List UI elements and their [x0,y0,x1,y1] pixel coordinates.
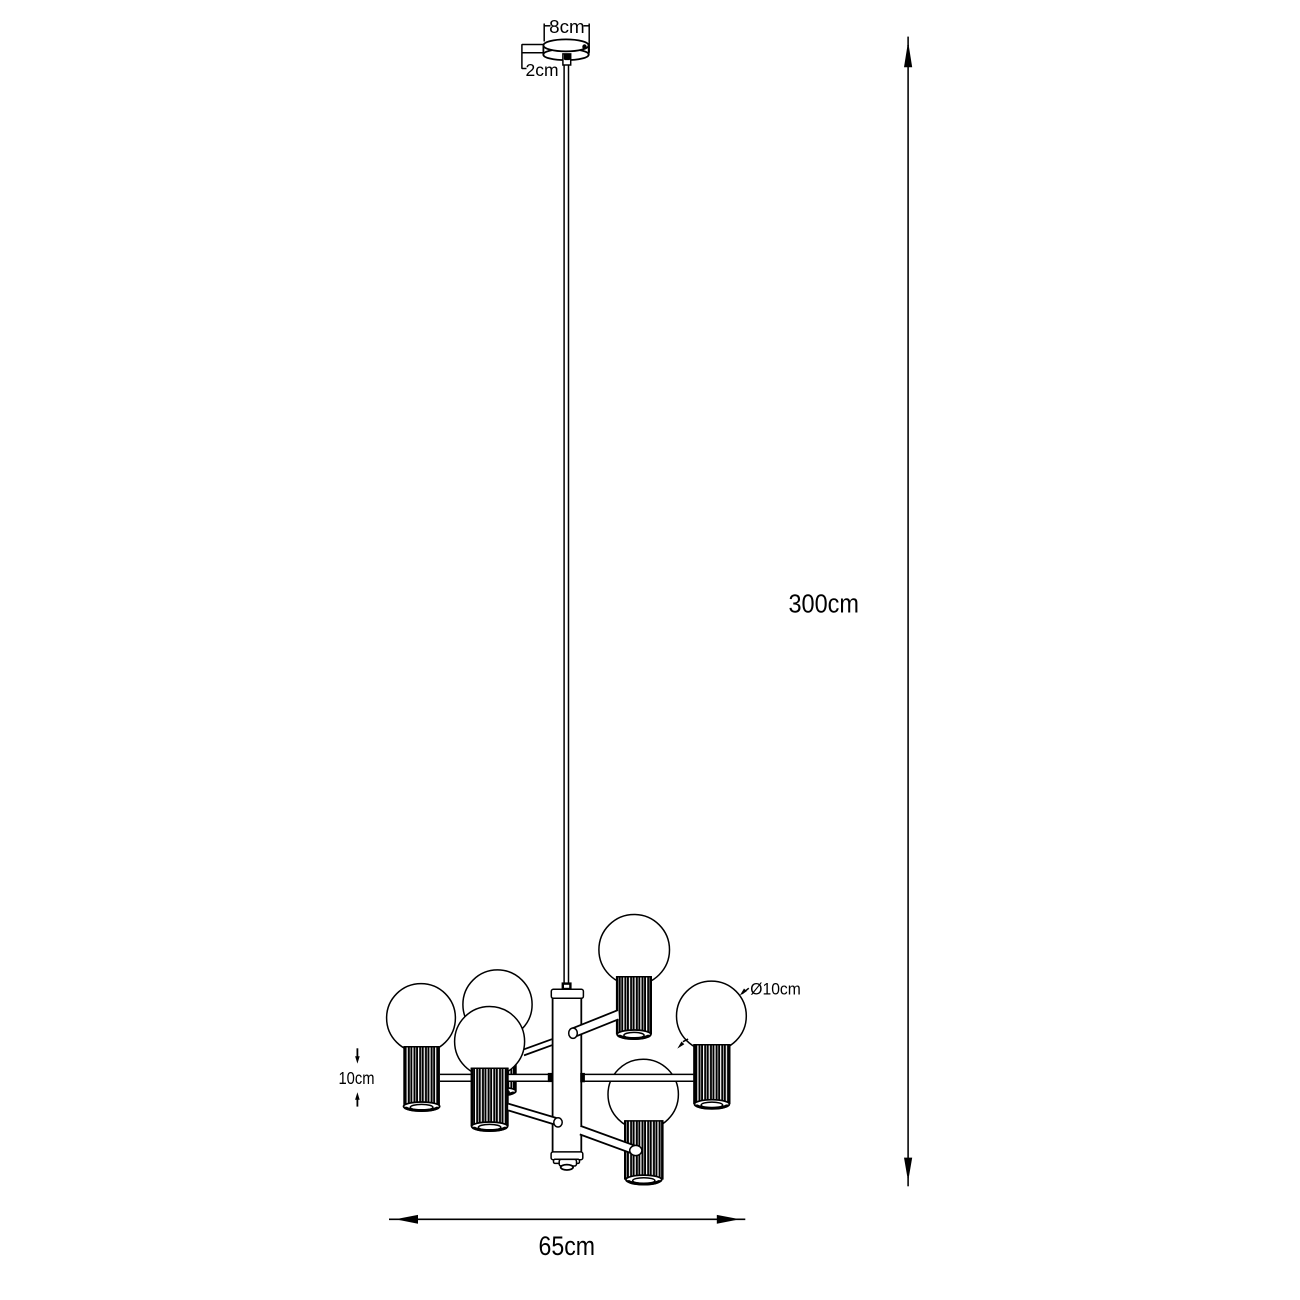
svg-text:300cm: 300cm [789,591,860,619]
svg-text:Ø10cm: Ø10cm [750,979,801,998]
svg-text:2cm: 2cm [526,60,559,80]
svg-text:10cm: 10cm [339,1068,375,1088]
svg-text:65cm: 65cm [539,1231,596,1261]
svg-text:8cm: 8cm [549,16,585,37]
